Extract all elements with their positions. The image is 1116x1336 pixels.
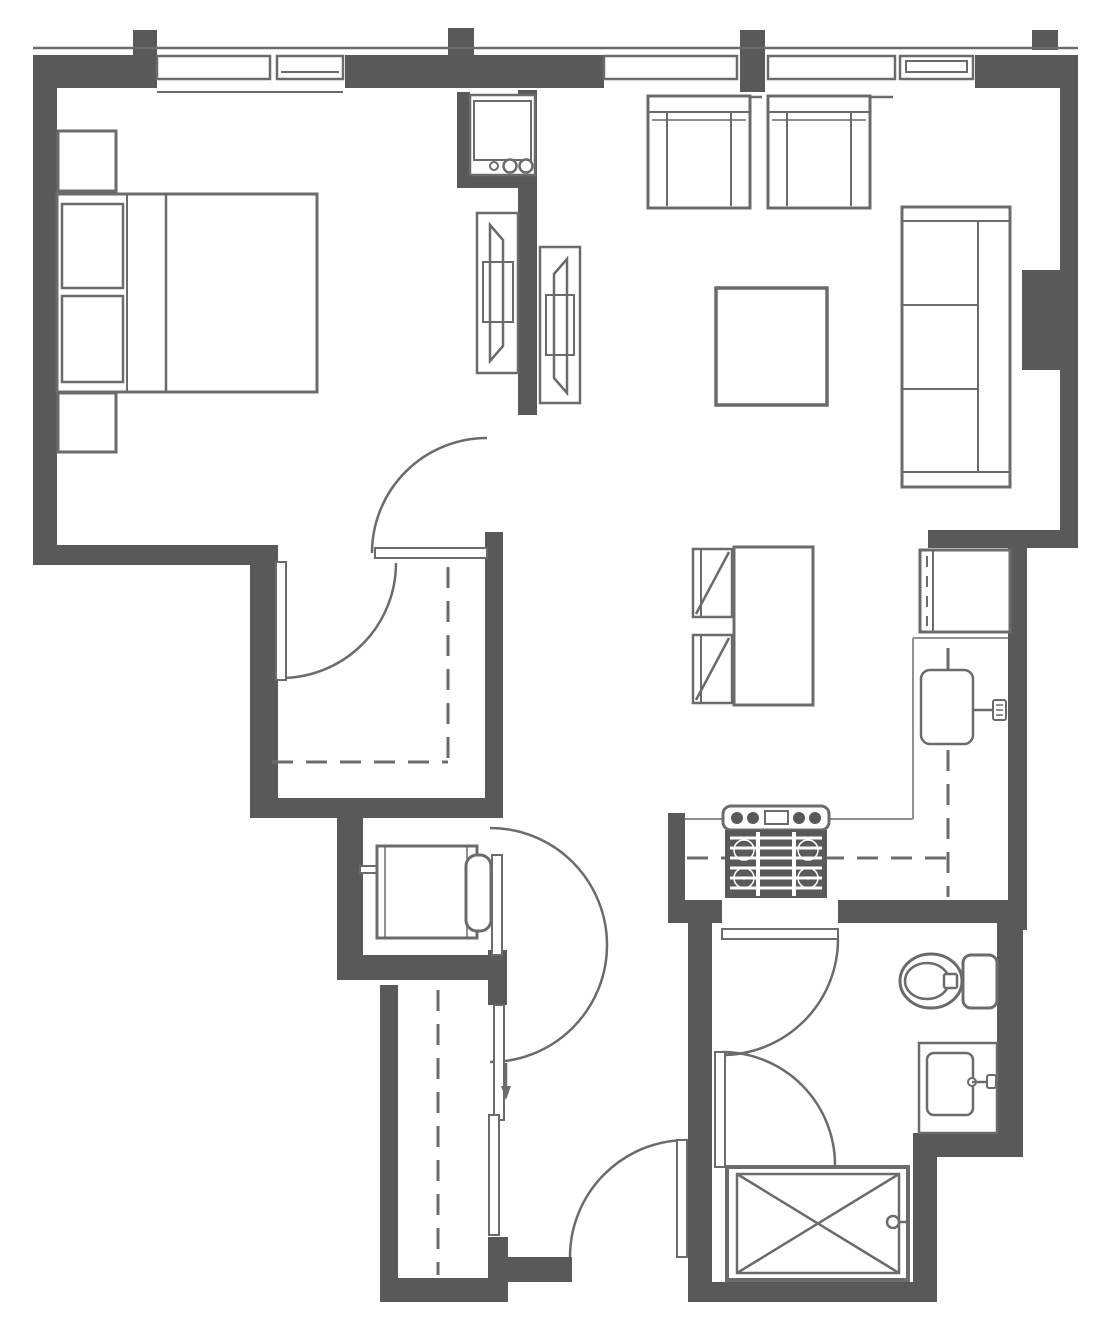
wall-hallcloset-bottom xyxy=(380,1278,508,1302)
wall-hallcloset-left xyxy=(380,985,398,1282)
water-heater-cylinder xyxy=(466,855,491,931)
utility-fixtures xyxy=(360,846,491,938)
wall-kitchen-bottom-right xyxy=(838,900,1008,923)
toilet-bowl-inner xyxy=(905,963,949,999)
vanity-sink xyxy=(927,1053,973,1115)
wall-utility-bottom xyxy=(337,955,507,980)
bathroom-fixtures xyxy=(727,954,997,1280)
window-mullion-tab xyxy=(133,30,157,57)
wall-top-mid xyxy=(345,55,604,88)
wall-living-right xyxy=(1060,80,1078,546)
range-display xyxy=(765,811,788,824)
wall-bath-right xyxy=(997,905,1023,1140)
sliding-panel-utility xyxy=(492,855,502,955)
wall-closet-bottom xyxy=(250,798,503,818)
dining-table xyxy=(734,547,813,705)
washer-knob xyxy=(490,162,498,170)
door-leaf-bedroom xyxy=(375,548,487,558)
range-knob xyxy=(731,812,743,824)
water-heater xyxy=(377,846,477,938)
toilet-tank xyxy=(963,955,997,1008)
wall-niche-block xyxy=(1022,270,1060,370)
coffee-table xyxy=(716,288,827,405)
window-vent-inset xyxy=(906,61,967,72)
washer-knob xyxy=(520,160,533,173)
window-panel xyxy=(157,56,270,79)
sofa xyxy=(902,207,1010,487)
sliding-panel-hall-closet xyxy=(489,1115,499,1235)
nightstand xyxy=(58,131,116,191)
wall-living-bottom xyxy=(928,530,1078,548)
wall-closet-right xyxy=(485,532,503,798)
wall-right-of-shower xyxy=(913,1157,937,1302)
window-panel xyxy=(604,56,737,79)
washer-dryer-drum xyxy=(474,101,531,160)
pillow xyxy=(62,204,123,288)
range-knob xyxy=(809,812,821,824)
door-arc-entry xyxy=(570,1140,687,1257)
range-knob xyxy=(747,812,759,824)
wall-bottom-right xyxy=(688,1282,937,1302)
wall-left xyxy=(33,80,57,560)
door-arc-shower-room xyxy=(722,1052,835,1165)
wall-step-lower xyxy=(488,1237,508,1278)
door-arc-hallway-double-swing xyxy=(490,828,607,1062)
door-leaf-walkin-closet xyxy=(276,562,286,680)
door-arc-walkin-closet xyxy=(281,563,396,678)
wall-bedroom-bottom xyxy=(33,545,278,565)
water-heater-pipe xyxy=(360,866,378,873)
wall-kitchen-left xyxy=(668,813,685,903)
toilet-flush-detail xyxy=(944,974,957,988)
pillow xyxy=(62,296,123,382)
living-room-furniture xyxy=(648,96,1010,487)
tv-stand-bedroom xyxy=(483,262,513,322)
nightstand xyxy=(58,393,116,452)
range-knob xyxy=(793,812,805,824)
door-leaf-bathroom xyxy=(722,929,838,939)
window-mullion-tab xyxy=(448,28,474,57)
floor-plan-drawing xyxy=(0,0,1116,1336)
wall-entry-left xyxy=(508,1257,572,1282)
kitchen-sink xyxy=(921,670,973,744)
tv-stand-living xyxy=(546,295,574,355)
shower-valve-knob xyxy=(887,1216,899,1228)
wall-step-right xyxy=(488,950,507,1005)
wall-laundry-niche-left xyxy=(457,92,470,175)
wall-utility-left xyxy=(337,818,363,955)
door-arc-bathroom xyxy=(722,939,838,1055)
washer-knob xyxy=(504,160,517,173)
door-leaf-shower-room xyxy=(715,1052,725,1167)
window-mullion-post xyxy=(740,30,765,92)
window-panel xyxy=(768,56,895,79)
wall-kitchen-bottom-left xyxy=(668,900,722,923)
window-panel xyxy=(277,56,343,79)
wall-under-vanity xyxy=(913,1133,1023,1157)
floor-plan-page xyxy=(0,0,1116,1336)
dining-furniture xyxy=(693,547,813,705)
bedroom-furniture xyxy=(57,131,317,452)
wall-bath-hall xyxy=(688,920,712,1282)
sliding-panel-hall-closet xyxy=(494,1005,504,1120)
vanity-faucet-base xyxy=(987,1075,996,1088)
door-leaf-entry xyxy=(677,1140,687,1257)
door-arc-bedroom xyxy=(372,438,487,553)
